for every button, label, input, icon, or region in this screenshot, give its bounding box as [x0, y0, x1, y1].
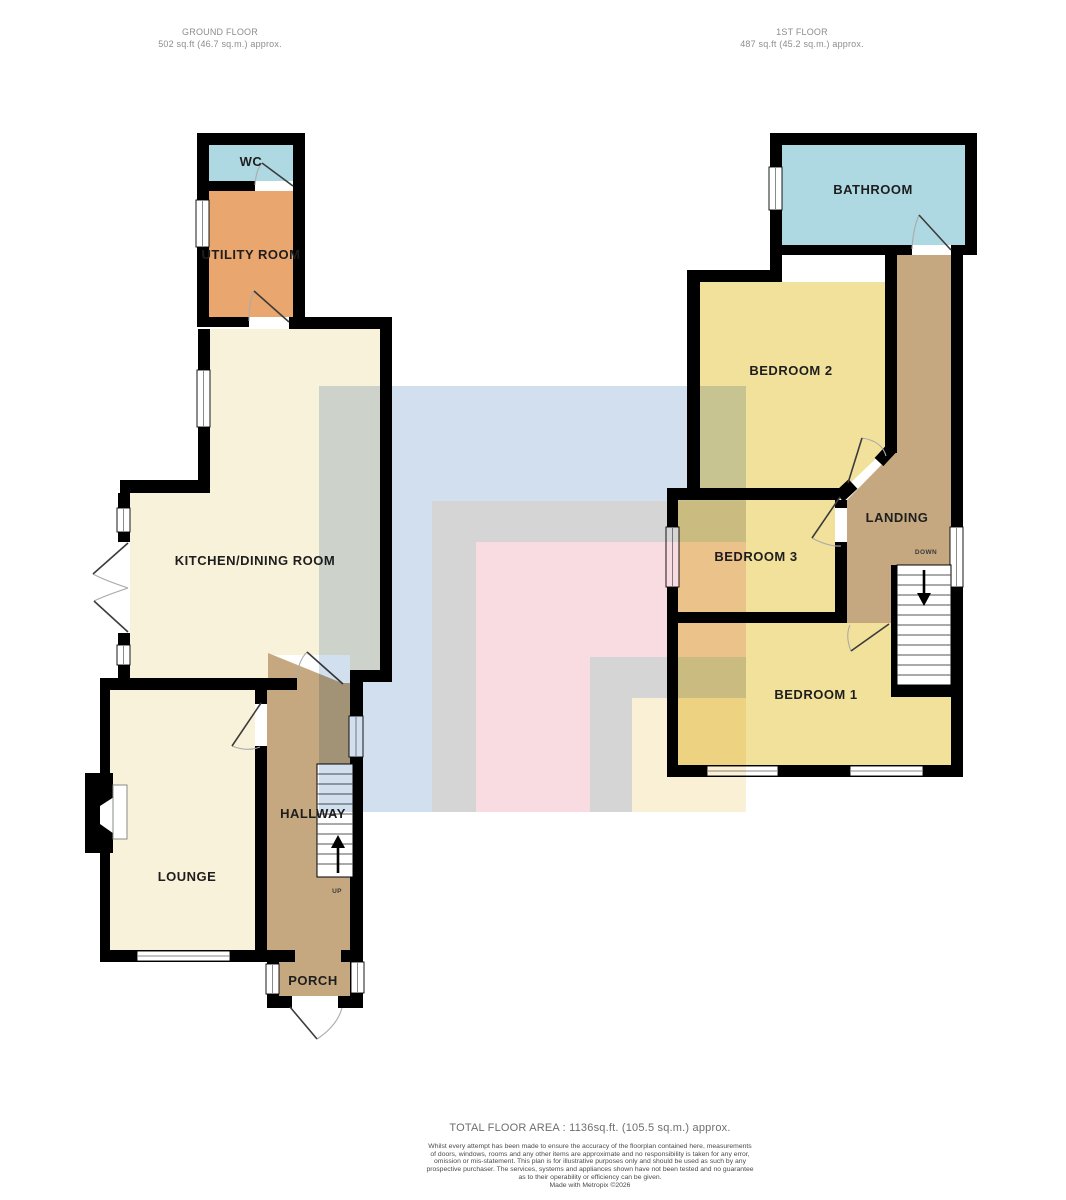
first-floor-area: 487 sq.ft (45.2 sq.m.) approx.	[652, 38, 952, 50]
total-floor-area: TOTAL FLOOR AREA : 1136sq.ft. (105.5 sq.…	[120, 1122, 1060, 1134]
label-up: UP	[332, 888, 342, 895]
label-bedroom1: BEDROOM 1	[774, 687, 857, 702]
label-landing: LANDING	[866, 510, 929, 525]
disclaimer-line: Whilst every attempt has been made to en…	[120, 1143, 1060, 1151]
first-floor-title: 1ST FLOOR	[652, 26, 952, 38]
window	[351, 962, 364, 993]
label-bedroom2: BEDROOM 2	[749, 363, 832, 378]
ground-floor-header: GROUND FLOOR 502 sq.ft (46.7 sq.m.) appr…	[70, 26, 370, 50]
window	[707, 766, 778, 776]
label-lounge: LOUNGE	[158, 869, 217, 884]
credit-line: Made with Metropix ©2026	[120, 1182, 1060, 1190]
first-floor-header: 1ST FLOOR 487 sq.ft (45.2 sq.m.) approx.	[652, 26, 952, 50]
door-french-left	[93, 543, 128, 632]
label-hallway: HALLWAY	[280, 806, 346, 821]
label-utility: UTILITY ROOM	[202, 247, 301, 262]
footer: TOTAL FLOOR AREA : 1136sq.ft. (105.5 sq.…	[120, 1122, 1060, 1189]
window	[950, 527, 963, 587]
disclaimer-line: prospective purchaser. The services, sys…	[120, 1166, 1060, 1174]
label-wc: WC	[240, 154, 263, 169]
label-kitchen: KITCHEN/DINING ROOM	[175, 553, 335, 568]
first-floor-plan: BATHROOM BEDROOM 2 LANDING BEDROOM 3 BED…	[666, 133, 977, 777]
ground-floor-plan: WC UTILITY ROOM KITCHEN/DINING ROOM LOUN…	[85, 133, 392, 1039]
room-kitchen-dining	[209, 329, 380, 655]
window	[666, 527, 679, 587]
disclaimer-line: of doors, windows, rooms and any other i…	[120, 1151, 1060, 1159]
room-lounge	[110, 690, 255, 950]
window	[266, 964, 279, 994]
label-bedroom3: BEDROOM 3	[714, 549, 797, 564]
window	[117, 645, 130, 665]
window	[197, 370, 210, 427]
disclaimer-line: omission or mis-statement. This plan is …	[120, 1158, 1060, 1166]
floorplan-drawing: WC UTILITY ROOM KITCHEN/DINING ROOM LOUN…	[0, 0, 1066, 1200]
door-porch	[290, 1007, 342, 1039]
stairs-down	[897, 565, 951, 685]
label-porch: PORCH	[288, 973, 337, 988]
window	[196, 200, 209, 247]
disclaimer-line: as to their operability or efficiency ca…	[120, 1174, 1060, 1182]
window	[349, 716, 363, 757]
window	[769, 167, 782, 210]
window	[137, 951, 230, 961]
ground-floor-title: GROUND FLOOR	[70, 26, 370, 38]
floorplan-page: WC UTILITY ROOM KITCHEN/DINING ROOM LOUN…	[0, 0, 1066, 1200]
room-bedroom2	[700, 282, 885, 488]
ground-floor-area: 502 sq.ft (46.7 sq.m.) approx.	[70, 38, 370, 50]
disclaimer: Whilst every attempt has been made to en…	[120, 1143, 1060, 1189]
window	[850, 766, 923, 776]
label-bathroom: BATHROOM	[833, 182, 913, 197]
window	[117, 508, 130, 532]
label-down: DOWN	[915, 549, 937, 556]
